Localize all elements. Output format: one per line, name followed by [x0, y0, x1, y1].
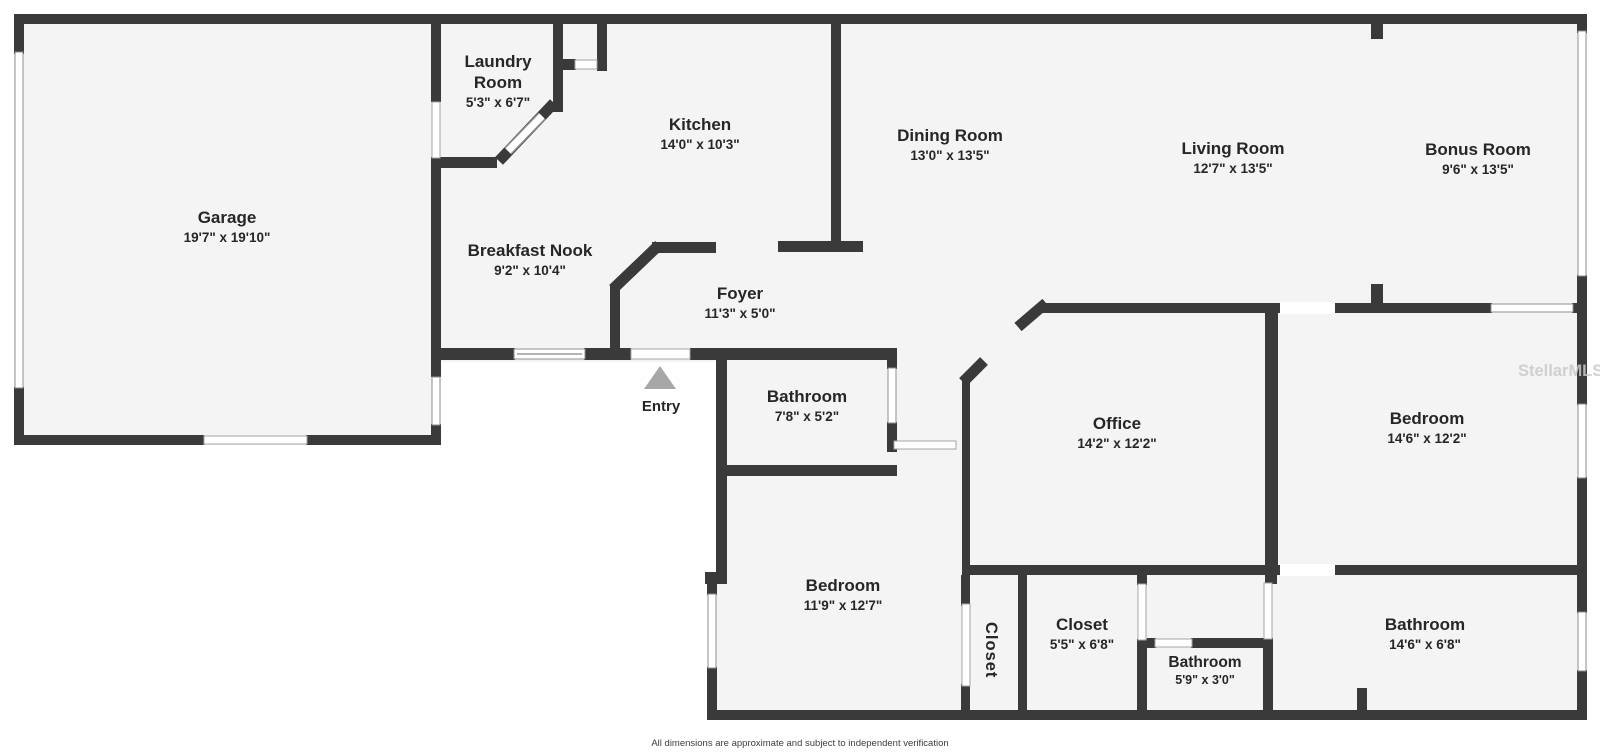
room-label-dining: Dining Room 13'0" x 13'5" — [897, 125, 1003, 165]
floor-plan: Garage 19'7" x 19'10" Laundry Room 5'3" … — [0, 0, 1600, 752]
room-label-office: Office 14'2" x 12'2" — [1077, 413, 1156, 453]
room-label-living: Living Room 12'7" x 13'5" — [1182, 138, 1285, 178]
footer-disclaimer: All dimensions are approximate and subje… — [651, 738, 948, 749]
room-label-garage: Garage 19'7" x 19'10" — [184, 207, 271, 247]
room-label-bathroom-front: Bathroom 7'8" x 5'2" — [767, 386, 847, 426]
room-label-bathroom-water-closet: Bathroom 5'9" x 3'0" — [1168, 653, 1241, 689]
floor-area — [14, 14, 1587, 720]
room-label-closet-walkin: Closet 5'5" x 6'8" — [1050, 614, 1114, 654]
room-label-closet-narrow: Closet — [981, 622, 1000, 678]
watermark: StellarMLS — [1518, 362, 1600, 381]
floor-plan-canvas — [0, 0, 1600, 752]
room-label-bedroom-second: Bedroom 11'9" x 12'7" — [804, 575, 883, 615]
room-label-bathroom-primary: Bathroom 14'6" x 6'8" — [1385, 614, 1465, 654]
room-label-foyer: Foyer 11'3" x 5'0" — [704, 283, 775, 323]
room-label-breakfast-nook: Breakfast Nook 9'2" x 10'4" — [468, 240, 593, 280]
room-label-kitchen: Kitchen 14'0" x 10'3" — [660, 114, 739, 154]
entry-label: Entry — [642, 398, 680, 415]
room-label-bedroom-primary: Bedroom 14'6" x 12'2" — [1387, 408, 1466, 448]
entry-arrow-icon — [644, 366, 676, 389]
room-label-bonus: Bonus Room 9'6" x 13'5" — [1425, 139, 1531, 179]
room-label-laundry: Laundry Room 5'3" x 6'7" — [450, 51, 546, 112]
